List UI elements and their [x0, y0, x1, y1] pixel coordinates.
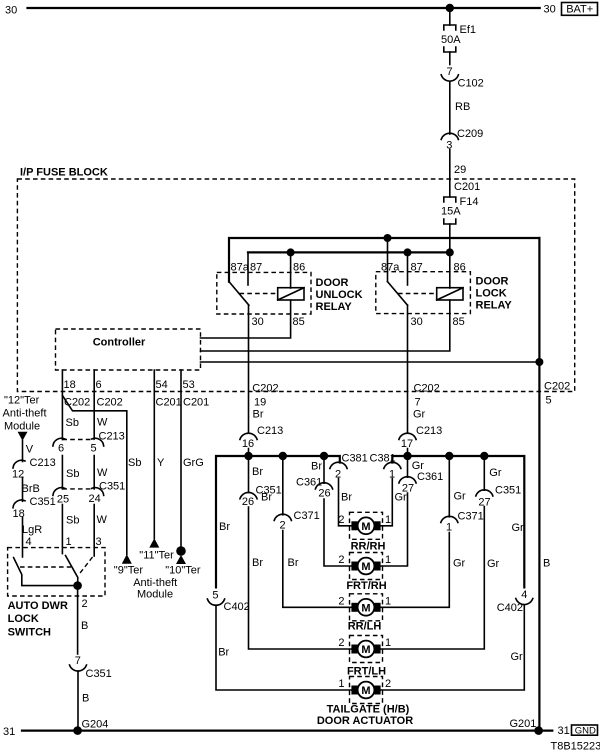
- svg-text:50A: 50A: [441, 34, 461, 46]
- svg-text:5: 5: [212, 590, 218, 602]
- svg-text:Y: Y: [157, 457, 165, 469]
- svg-text:2: 2: [338, 637, 344, 649]
- svg-text:30: 30: [252, 316, 264, 328]
- svg-text:BrB: BrB: [22, 483, 40, 495]
- svg-text:C201: C201: [183, 397, 209, 409]
- svg-text:M: M: [361, 561, 370, 573]
- svg-text:1: 1: [385, 637, 391, 649]
- svg-text:W: W: [97, 467, 108, 479]
- svg-text:Br: Br: [253, 409, 264, 421]
- svg-text:RELAY: RELAY: [476, 300, 513, 312]
- svg-text:T8B15223: T8B15223: [551, 741, 600, 753]
- svg-text:"9"Ter: "9"Ter: [114, 565, 144, 577]
- svg-text:Br: Br: [311, 460, 322, 472]
- svg-text:Br: Br: [252, 557, 263, 569]
- svg-text:Anti-theft: Anti-theft: [3, 408, 47, 420]
- svg-text:18: 18: [64, 379, 76, 391]
- svg-text:C202: C202: [97, 397, 123, 409]
- svg-text:2: 2: [338, 514, 344, 526]
- svg-text:C201: C201: [454, 181, 480, 193]
- svg-text:2: 2: [385, 678, 391, 690]
- svg-text:7: 7: [446, 66, 452, 78]
- svg-text:1: 1: [66, 536, 72, 548]
- svg-text:Br: Br: [341, 492, 352, 504]
- svg-text:53: 53: [183, 379, 195, 391]
- svg-text:DOOR: DOOR: [316, 277, 349, 289]
- svg-text:87: 87: [411, 262, 423, 274]
- svg-text:M: M: [361, 521, 370, 533]
- svg-text:Sb: Sb: [66, 468, 79, 480]
- svg-text:V: V: [26, 444, 34, 456]
- svg-text:TAILGATE (H/B): TAILGATE (H/B): [327, 704, 410, 716]
- svg-text:3: 3: [96, 536, 102, 548]
- svg-text:C361: C361: [417, 471, 443, 483]
- svg-text:RR/LH: RR/LH: [348, 621, 382, 633]
- svg-text:C371: C371: [458, 511, 484, 523]
- svg-text:C381: C381: [370, 453, 396, 465]
- svg-text:Ef1: Ef1: [460, 24, 477, 36]
- svg-text:15A: 15A: [441, 206, 461, 218]
- svg-text:26: 26: [318, 488, 330, 500]
- svg-text:Gr: Gr: [511, 651, 524, 663]
- svg-text:B: B: [81, 620, 88, 632]
- svg-text:Br: Br: [252, 466, 263, 478]
- svg-text:"12"Ter: "12"Ter: [4, 395, 40, 407]
- svg-text:LOCK: LOCK: [476, 288, 507, 300]
- svg-text:M: M: [361, 685, 370, 697]
- svg-text:RELAY: RELAY: [316, 301, 353, 313]
- svg-text:2: 2: [338, 554, 344, 566]
- svg-text:Controller: Controller: [93, 337, 146, 349]
- svg-text:Sb: Sb: [128, 457, 141, 469]
- svg-text:F14: F14: [460, 196, 479, 208]
- svg-text:Gr: Gr: [512, 522, 525, 534]
- svg-text:30: 30: [411, 316, 423, 328]
- svg-text:C201: C201: [156, 397, 182, 409]
- svg-text:C402: C402: [497, 602, 523, 614]
- svg-text:87a: 87a: [231, 262, 250, 274]
- svg-text:7: 7: [75, 655, 81, 667]
- svg-text:1: 1: [385, 554, 391, 566]
- svg-text:19: 19: [254, 397, 266, 409]
- svg-text:C213: C213: [99, 431, 125, 443]
- svg-text:30: 30: [544, 4, 556, 16]
- svg-text:C202: C202: [414, 383, 440, 395]
- svg-text:31: 31: [3, 726, 15, 738]
- svg-text:Module: Module: [4, 421, 40, 433]
- svg-text:87: 87: [250, 262, 262, 274]
- svg-text:"10"Ter: "10"Ter: [165, 565, 201, 577]
- svg-text:BAT+: BAT+: [566, 4, 593, 16]
- svg-text:B: B: [543, 558, 550, 570]
- svg-text:I/P FUSE BLOCK: I/P FUSE BLOCK: [20, 167, 108, 179]
- svg-text:5: 5: [546, 395, 552, 407]
- svg-text:LOCK: LOCK: [8, 613, 39, 625]
- svg-text:Gr: Gr: [413, 409, 426, 421]
- svg-text:C202: C202: [544, 381, 570, 393]
- svg-text:C381: C381: [342, 453, 368, 465]
- svg-text:Gr: Gr: [454, 491, 467, 503]
- svg-text:UNLOCK: UNLOCK: [316, 289, 363, 301]
- svg-text:C202: C202: [252, 383, 278, 395]
- svg-text:RR/RH: RR/RH: [351, 541, 386, 553]
- svg-text:1: 1: [385, 595, 391, 607]
- svg-text:29: 29: [454, 164, 466, 176]
- svg-text:LgR: LgR: [22, 524, 42, 536]
- svg-text:1: 1: [385, 514, 391, 526]
- svg-text:2: 2: [338, 595, 344, 607]
- svg-text:6: 6: [96, 379, 102, 391]
- svg-text:Sb: Sb: [66, 515, 79, 527]
- svg-text:G204: G204: [82, 719, 109, 731]
- svg-text:C402: C402: [224, 601, 250, 613]
- svg-text:Gr: Gr: [487, 558, 500, 570]
- svg-text:2: 2: [82, 598, 88, 610]
- svg-text:Br: Br: [261, 492, 272, 504]
- svg-text:Sb: Sb: [66, 417, 79, 429]
- svg-text:31: 31: [558, 725, 570, 737]
- svg-text:85: 85: [453, 316, 465, 328]
- svg-text:C102: C102: [458, 78, 484, 90]
- svg-text:C351: C351: [30, 496, 56, 508]
- svg-text:B: B: [82, 693, 89, 705]
- svg-text:85: 85: [293, 316, 305, 328]
- svg-text:5: 5: [91, 443, 97, 455]
- svg-text:24: 24: [89, 493, 101, 505]
- svg-text:DOOR: DOOR: [476, 276, 509, 288]
- svg-text:30: 30: [5, 5, 17, 17]
- svg-text:86: 86: [293, 262, 305, 274]
- svg-text:Br: Br: [288, 557, 299, 569]
- svg-text:54: 54: [156, 379, 168, 391]
- svg-text:M: M: [361, 644, 370, 656]
- svg-text:C351: C351: [86, 668, 112, 680]
- svg-text:4: 4: [521, 589, 527, 601]
- svg-text:Br: Br: [218, 647, 229, 659]
- svg-text:C213: C213: [257, 425, 283, 437]
- svg-text:GND: GND: [575, 725, 596, 736]
- svg-text:Gr: Gr: [453, 558, 466, 570]
- svg-text:G201: G201: [510, 718, 537, 730]
- svg-text:87a: 87a: [381, 262, 400, 274]
- svg-text:SWITCH: SWITCH: [8, 627, 51, 639]
- svg-text:W: W: [97, 417, 108, 429]
- svg-text:W: W: [97, 514, 108, 526]
- svg-text:AUTO DWR: AUTO DWR: [8, 600, 68, 612]
- svg-text:4: 4: [26, 536, 32, 548]
- svg-text:C351: C351: [99, 481, 125, 493]
- svg-text:"11"Ter: "11"Ter: [139, 550, 174, 562]
- svg-text:86: 86: [454, 262, 466, 274]
- svg-text:FRT/RH: FRT/RH: [346, 580, 386, 592]
- svg-text:Br: Br: [219, 521, 230, 533]
- svg-text:Gr: Gr: [489, 467, 502, 479]
- svg-text:C209: C209: [457, 128, 483, 140]
- svg-text:7: 7: [415, 397, 421, 409]
- svg-text:RB: RB: [455, 101, 470, 113]
- svg-text:6: 6: [58, 443, 64, 455]
- svg-text:Anti-theft: Anti-theft: [133, 577, 177, 589]
- svg-text:FRT/LH: FRT/LH: [347, 666, 386, 678]
- svg-text:Module: Module: [137, 589, 173, 601]
- svg-text:C351: C351: [495, 485, 521, 497]
- svg-text:C361: C361: [296, 477, 322, 489]
- svg-text:M: M: [361, 602, 370, 614]
- svg-text:DOOR ACTUATOR: DOOR ACTUATOR: [317, 715, 413, 727]
- svg-text:C213: C213: [30, 457, 56, 469]
- svg-text:C213: C213: [416, 425, 442, 437]
- svg-text:1: 1: [338, 678, 344, 690]
- svg-text:C371: C371: [294, 510, 320, 522]
- svg-text:GrG: GrG: [183, 457, 204, 469]
